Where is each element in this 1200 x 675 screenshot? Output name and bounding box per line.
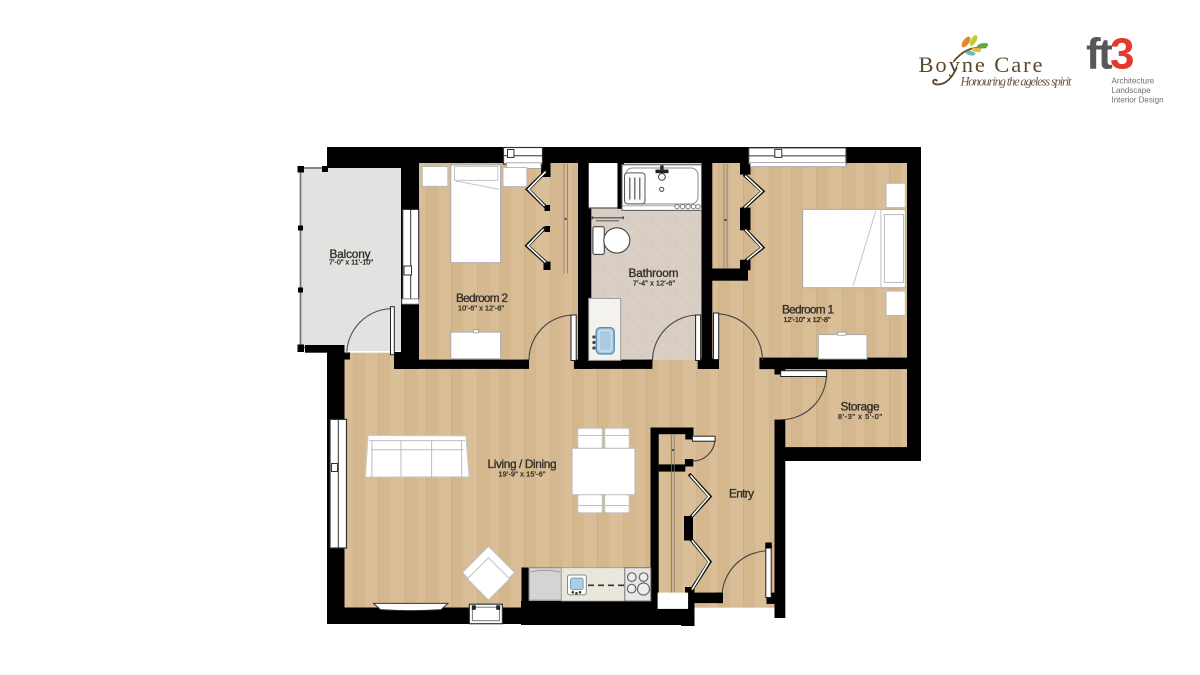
svg-text:Architecture: Architecture bbox=[1112, 77, 1155, 86]
svg-text:3: 3 bbox=[1110, 30, 1134, 79]
svg-text:7'-0" x 11'-10": 7'-0" x 11'-10" bbox=[329, 258, 373, 267]
svg-text:19'-9" x 15'-6": 19'-9" x 15'-6" bbox=[499, 470, 546, 479]
svg-text:10'-6" x 12'-8": 10'-6" x 12'-8" bbox=[458, 304, 504, 313]
svg-text:Landscape: Landscape bbox=[1112, 86, 1152, 95]
svg-text:Honouring the ageless spirit: Honouring the ageless spirit bbox=[960, 74, 1073, 88]
svg-text:8'-3" x 5'-0": 8'-3" x 5'-0" bbox=[838, 412, 882, 421]
svg-text:7'-4" x 12'-6": 7'-4" x 12'-6" bbox=[633, 278, 675, 287]
svg-text:Interior Design: Interior Design bbox=[1112, 95, 1164, 104]
svg-text:12'-10" x 12'-8": 12'-10" x 12'-8" bbox=[784, 315, 831, 324]
svg-text:Entry: Entry bbox=[729, 487, 754, 501]
svg-text:Boyne Care: Boyne Care bbox=[919, 52, 1043, 77]
